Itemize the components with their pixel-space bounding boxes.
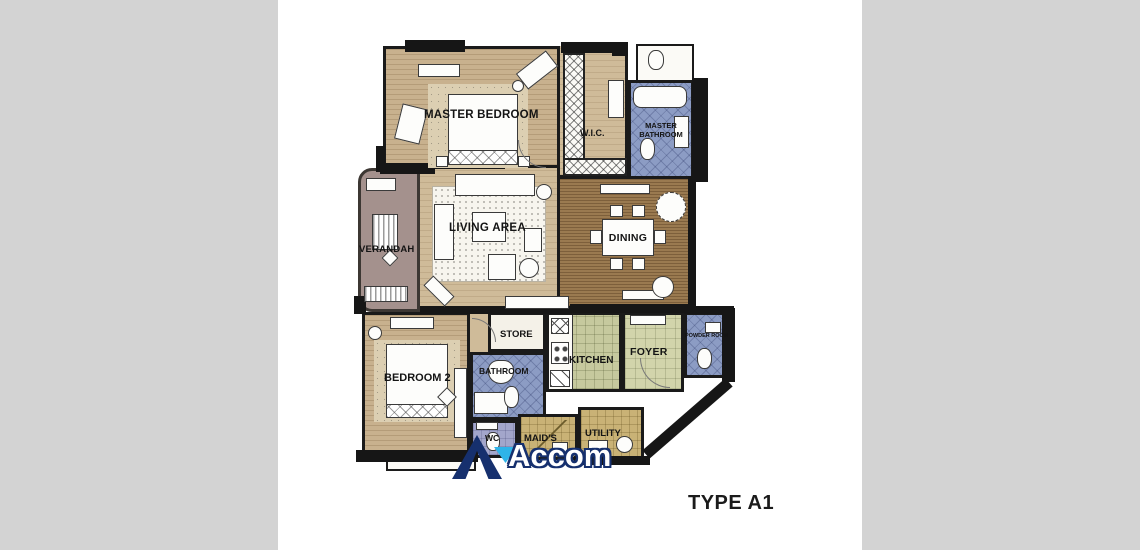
dining-chair xyxy=(632,258,645,270)
wall-segment xyxy=(380,163,435,174)
wardrobe xyxy=(454,368,467,438)
planter xyxy=(364,286,408,302)
wall-segment xyxy=(356,450,478,462)
console-table xyxy=(505,296,569,309)
plant xyxy=(656,192,686,222)
desk-chair xyxy=(512,80,524,92)
dining-table: DINING xyxy=(602,219,654,256)
room-label-verandah: VERANDAH xyxy=(359,244,414,255)
wall-segment xyxy=(570,304,695,313)
room-label-bedroom-2: BEDROOM 2 xyxy=(384,372,451,384)
room-label-dining: DINING xyxy=(609,232,648,244)
watermark-text: Accom xyxy=(508,438,611,474)
sideboard xyxy=(600,184,650,194)
wic-closet-strip xyxy=(563,53,585,165)
room-label-powder-room: POWDER ROOM xyxy=(685,333,727,339)
room-label-foyer: FOYER xyxy=(630,346,668,358)
master-bed-pillows xyxy=(448,150,518,165)
stove xyxy=(551,342,569,364)
toilet xyxy=(648,50,664,70)
wall-segment xyxy=(692,78,708,182)
armchair xyxy=(488,254,516,280)
vanity xyxy=(474,392,508,414)
sink xyxy=(476,422,498,430)
room-label-living-area: LIVING AREA xyxy=(449,222,526,234)
nightstand xyxy=(436,156,448,167)
kitchen-sink xyxy=(551,318,569,334)
wall-segment xyxy=(405,40,465,52)
fridge xyxy=(550,370,570,387)
toilet xyxy=(504,386,519,408)
wall-segment xyxy=(688,176,696,308)
bed-2-pillows xyxy=(386,404,448,418)
master-bed xyxy=(448,94,518,154)
wic-desk xyxy=(608,80,624,118)
room-label-master-bathroom: MASTER BATHROOM xyxy=(631,122,691,139)
dining-chair xyxy=(654,230,666,244)
floorplan-image: DINING MASTER BEDROOM W.I.C. MASTER BATH… xyxy=(0,0,1140,550)
dining-chair xyxy=(590,230,602,244)
wall-segment xyxy=(612,42,628,56)
wardrobe-band xyxy=(563,158,627,176)
room-label-bathroom: BATHROOM xyxy=(479,366,528,376)
wall-segment xyxy=(561,42,617,53)
dining-chair xyxy=(632,205,645,217)
room-label-wc: WC xyxy=(485,433,499,443)
stool xyxy=(368,326,382,340)
tv-unit xyxy=(524,228,542,252)
room-label-store: STORE xyxy=(500,329,533,340)
sink xyxy=(705,322,721,333)
round-table xyxy=(652,276,674,298)
room-label-wic: W.I.C. xyxy=(580,128,605,138)
sofa xyxy=(455,174,535,196)
side-table xyxy=(536,184,552,200)
wall-segment xyxy=(722,308,735,382)
room-label-master-bedroom: MASTER BEDROOM xyxy=(424,109,539,121)
room-label-kitchen: KITCHEN xyxy=(569,355,613,366)
ottoman xyxy=(519,258,539,278)
dresser xyxy=(390,317,434,329)
dining-chair xyxy=(610,205,623,217)
toilet xyxy=(697,348,712,369)
plan-type-title: TYPE A1 xyxy=(688,492,774,515)
bathtub xyxy=(633,86,687,108)
planter xyxy=(366,178,396,191)
toilet xyxy=(640,138,655,160)
shoe-cabinet xyxy=(630,315,666,325)
room-master-bath-upper xyxy=(636,44,694,82)
dresser xyxy=(418,64,460,77)
dining-chair xyxy=(610,258,623,270)
